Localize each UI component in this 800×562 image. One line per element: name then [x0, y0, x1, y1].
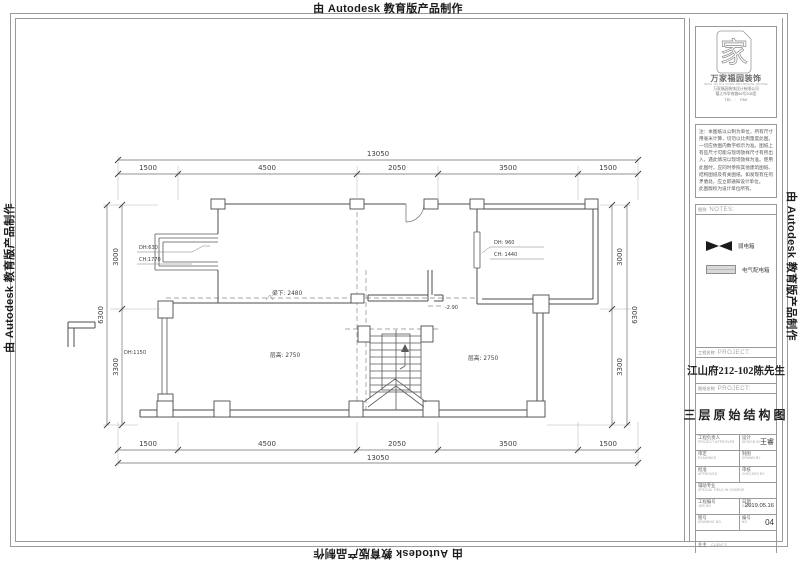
dim-top-seg-2: 2050 — [388, 164, 406, 172]
cell-design-by: 设计 DESIGN BY 王睿 — [740, 435, 776, 450]
dim-left-seg-0: 3000 — [112, 248, 120, 266]
bowtie-symbol-icon — [706, 241, 732, 251]
cell-project-approver: 工程负责人 PROJECT APPROVER — [696, 435, 740, 450]
project-header-en: PROJECT: — [718, 350, 751, 356]
company-logo-icon: 家 — [716, 30, 756, 74]
dimension-top: 13050 1500 4500 2050 3500 1500 — [115, 150, 641, 200]
dim-bot-seg-0: 1500 — [139, 440, 157, 448]
dim-top-total: 13050 — [367, 150, 389, 158]
dim-bot-seg-3: 3500 — [499, 440, 517, 448]
cell-label-en: DRAWING NO. — [698, 521, 737, 525]
label-bay-dh: DH:630 — [139, 245, 158, 251]
table-row-approved: 批准 APPROVED 审核 CHECKED BY — [696, 467, 776, 483]
project-name-header: 工程名称 PROJECT: — [696, 348, 776, 358]
client-label-cn: 业主 — [698, 542, 707, 547]
drawing-name: 三层原始结构图 — [696, 394, 776, 435]
cell-label-en: JOB NO. — [698, 505, 737, 509]
legend-header-en: NOTES: — [709, 207, 734, 213]
label-win-right-dh: DH: 960 — [494, 240, 514, 246]
client-box: 业主 CLIENT'S — [696, 531, 776, 553]
cell-drawn-by: 制图 DRAWN BY — [740, 451, 776, 466]
cell-label-en: CHECKED BY — [742, 473, 774, 477]
cell-sheet-no: 编号 NO. 04 — [740, 515, 776, 530]
cell-job-no: 工程编号 JOB NO. — [696, 499, 740, 514]
panel-symbol-icon — [706, 265, 736, 274]
legend-header-cn: 图例 — [698, 207, 706, 213]
table-row-approver: 工程负责人 PROJECT APPROVER 设计 DESIGN BY 王睿 — [696, 435, 776, 451]
drawing-header-en: PROJECT: — [718, 386, 751, 392]
columns — [157, 199, 598, 417]
dim-top-seg-0: 1500 — [139, 164, 157, 172]
floor-plan: 13050 1500 4500 2050 3500 1500 1500 4500… — [0, 0, 800, 559]
window-right — [474, 232, 480, 268]
drawing-header-cn: 图纸名称 — [698, 386, 715, 392]
cell-label-en: DRAWN BY — [742, 457, 774, 461]
legend-item-label: 电气配电箱 — [742, 266, 770, 274]
dim-bot-seg-4: 1500 — [599, 440, 617, 448]
cell-label-en: APPROVED — [698, 473, 737, 477]
legend-item-weak-current-box: 弱电箱 — [706, 241, 776, 251]
dim-top-seg-4: 1500 — [599, 164, 617, 172]
walls — [68, 204, 598, 417]
dim-top-seg-1: 4500 — [258, 164, 276, 172]
label-win-right-ch: CH: 1440 — [494, 252, 517, 258]
dim-left-seg-1: 3300 — [112, 358, 120, 376]
dim-top-seg-3: 3500 — [499, 164, 517, 172]
legend: 弱电箱 电气配电箱 — [696, 215, 776, 348]
title-block-sections: 图例 NOTES: 弱电箱 电气配电箱 — [695, 204, 777, 553]
client-label-en: CLIENT'S — [711, 543, 727, 547]
dim-bot-seg-1: 4500 — [258, 440, 276, 448]
label-level: -2.90 — [445, 305, 458, 311]
dimension-bottom: 1500 4500 2050 3500 1500 13050 — [115, 422, 641, 466]
legend-item-distribution-box: 电气配电箱 — [706, 265, 776, 274]
window-left — [162, 318, 167, 394]
sheet-number: 04 — [765, 518, 774, 527]
stair-up-arrow — [400, 344, 409, 369]
dim-right-seg-1: 3300 — [616, 358, 624, 376]
project-header-cn: 工程名称 — [698, 350, 715, 356]
cell-label-en: PROJECT APPROVER — [698, 441, 737, 445]
table-row-job-no: 工程编号 JOB NO. 日期 DATE 2019.05.16 — [696, 499, 776, 515]
legend-header: 图例 NOTES: — [696, 205, 776, 215]
designer-name: 王睿 — [760, 437, 774, 447]
plan-labels: DH:630 CH:1770 DH: 960 CH: 1440 DH:1150 … — [124, 240, 544, 362]
title-block-inner: 家 万家福园装饰 WAN JIA FU YUAN DECORATE HOUSE … — [689, 18, 782, 541]
cell-label-en: EXAMINED — [698, 457, 737, 461]
cell-checked-by: 审核 CHECKED BY — [740, 467, 776, 482]
door-arc — [406, 204, 424, 222]
beam-dashed-lines — [166, 204, 477, 410]
dimension-left: 3000 3300 6300 — [97, 202, 160, 428]
dim-left-total: 6300 — [97, 306, 105, 324]
dim-bot-seg-2: 2050 — [388, 440, 406, 448]
cell-special-field: 辅助专业 SPECIAL FIELD IN CHARGE — [696, 483, 776, 498]
title-block: 家 万家福园装饰 WAN JIA FU YUAN DECORATE HOUSE … — [684, 18, 782, 541]
general-notes: 注：本图纸以公制为单位，所有尺寸用毫米计算，切勿以比例量度此图。一切应依图内数字… — [695, 124, 777, 198]
company-logo-box: 家 万家福园装饰 WAN JIA FU YUAN DECORATE HOUSE … — [695, 26, 777, 118]
cell-approved: 批准 APPROVED — [696, 467, 740, 482]
legend-item-label: 弱电箱 — [738, 242, 755, 250]
dim-right-seg-0: 3000 — [616, 248, 624, 266]
label-ceiling-right: 层高: 2750 — [468, 354, 498, 362]
dim-right-total: 6300 — [631, 306, 639, 324]
dim-bot-total: 13050 — [367, 454, 389, 462]
date-value: 2019.05.16 — [745, 503, 774, 509]
cell-date: 日期 DATE 2019.05.16 — [740, 499, 776, 514]
svg-text:家: 家 — [720, 37, 748, 69]
cell-label-en: SPECIAL FIELD IN CHARGE — [698, 489, 774, 493]
table-row-drawing-no: 图号 DRAWING NO. 编号 NO. 04 — [696, 515, 776, 531]
label-ceiling-left: 层高: 2750 — [270, 351, 300, 359]
table-row-special-field: 辅助专业 SPECIAL FIELD IN CHARGE — [696, 483, 776, 499]
project-name: 江山府212-102陈先生 — [696, 358, 776, 384]
cell-examined: 审定 EXAMINED — [696, 451, 740, 466]
stair-break-line — [364, 379, 426, 407]
table-row-examined: 审定 EXAMINED 制图 DRAWN BY — [696, 451, 776, 467]
stairs — [364, 330, 426, 410]
label-win-left-dh: DH:1150 — [124, 350, 146, 356]
label-beam-height: 梁下: 2480 — [272, 289, 302, 297]
cell-drawing-no: 图号 DRAWING NO. — [696, 515, 740, 530]
label-bay-ch: CH:1770 — [139, 257, 161, 263]
drawing-name-header: 图纸名称 PROJECT: — [696, 384, 776, 394]
company-phone: TEL · FAX — [725, 98, 748, 104]
